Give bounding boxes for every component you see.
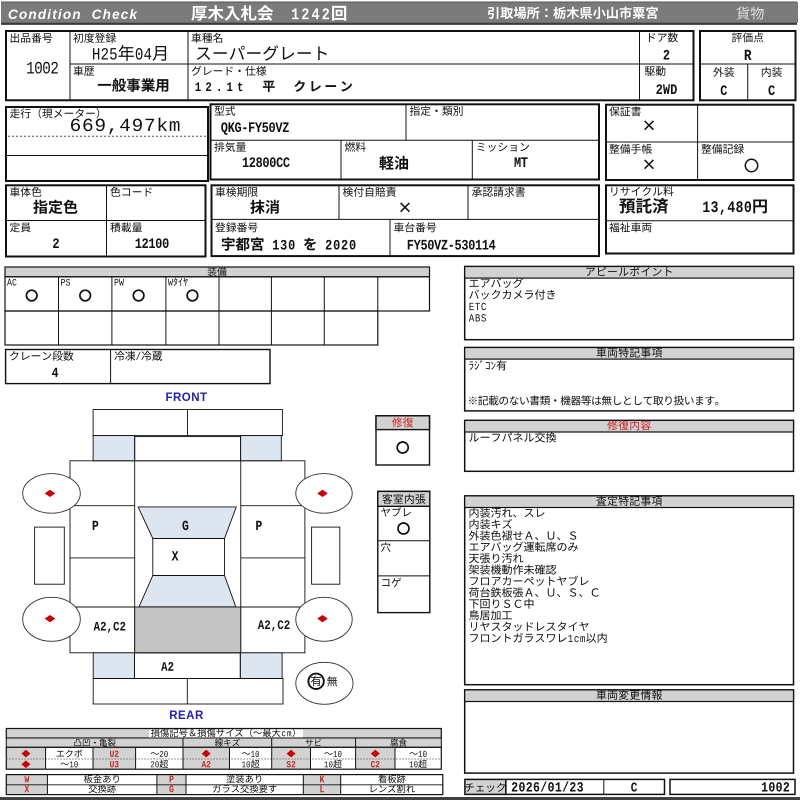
- svg-text:FRONT: FRONT: [165, 392, 207, 404]
- svg-text:Condition Check: Condition Check: [8, 7, 138, 22]
- svg-text:REAR: REAR: [169, 710, 204, 722]
